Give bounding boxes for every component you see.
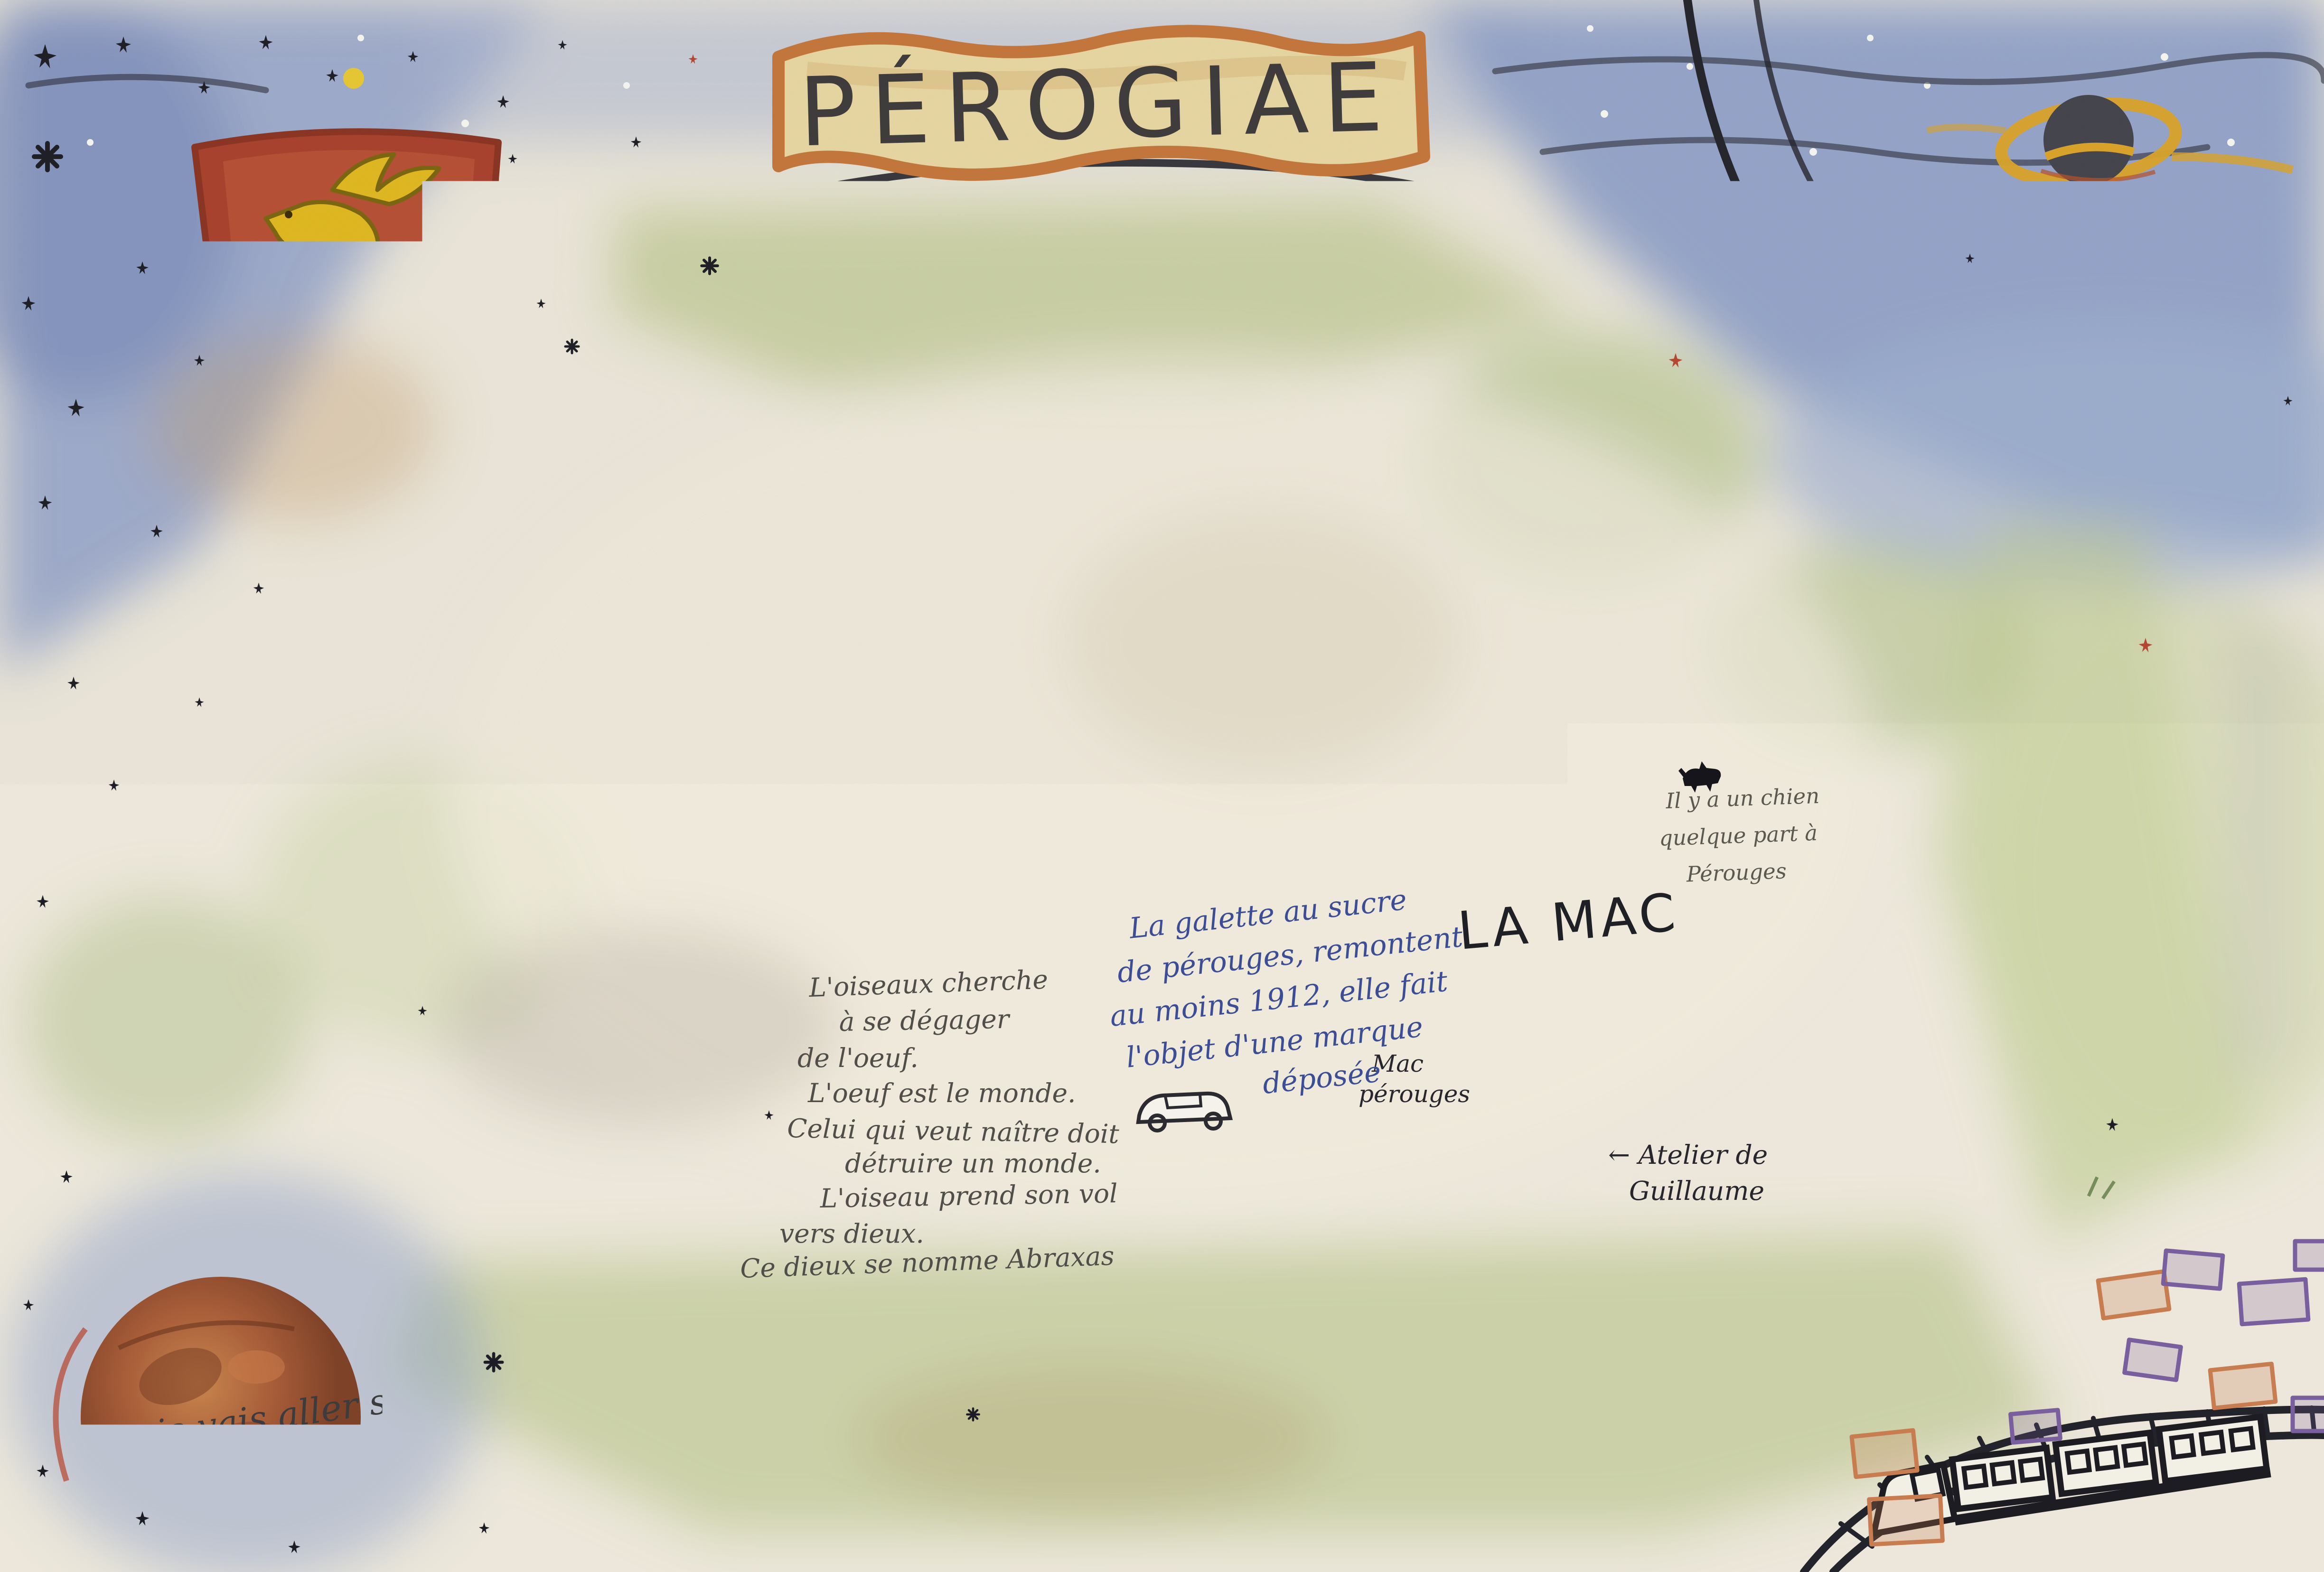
perouges-map-painting: PÉROGIAE bbox=[0, 0, 2324, 1572]
paper-texture bbox=[0, 0, 2324, 1572]
painting-canvas: PÉROGIAE bbox=[0, 0, 2324, 1572]
